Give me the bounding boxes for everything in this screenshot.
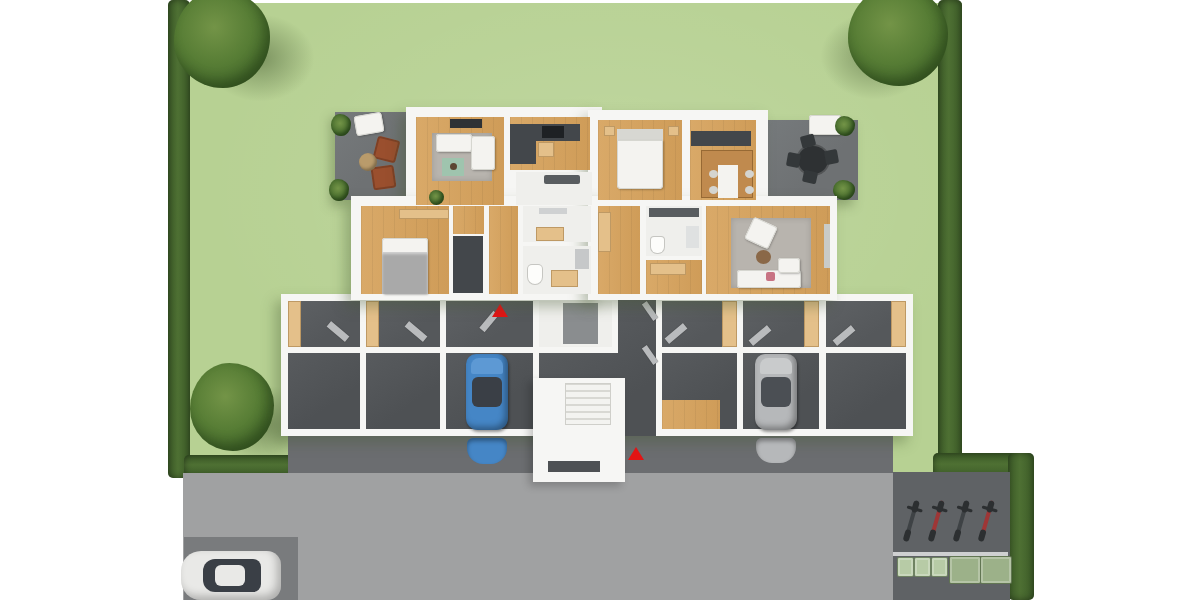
garage-bay [826, 353, 906, 429]
bicycle-row [903, 500, 1003, 550]
tree-middle-left [190, 363, 274, 451]
bed-headboard [617, 129, 663, 140]
waste-bin-large [949, 556, 981, 584]
window-strip [824, 224, 830, 268]
kitchen-island [510, 141, 536, 164]
table-runner [718, 165, 738, 198]
storage-shelf [804, 301, 819, 347]
waste-bin-row [897, 556, 1012, 586]
washer [575, 249, 589, 269]
waste-bin-large [980, 556, 1012, 584]
garage-bay [288, 353, 360, 429]
entry-doormat [548, 461, 600, 472]
sofa [436, 134, 472, 152]
dining-sideboard [691, 131, 751, 146]
basement-room-wood-floor [662, 400, 720, 429]
storage-shelf [722, 301, 737, 347]
sideboard [650, 263, 686, 275]
elevator [561, 301, 600, 346]
bicycle [972, 499, 1000, 546]
bed-2-duvet [382, 252, 428, 294]
bicycle [947, 499, 975, 546]
bicycle [922, 499, 950, 546]
wardrobe [453, 236, 483, 293]
staircase [565, 383, 611, 425]
storage-shelf [366, 301, 379, 347]
storage-shelf [891, 301, 906, 347]
nightstand [668, 126, 679, 136]
toilet [651, 237, 664, 253]
blue-car-hood [471, 358, 503, 374]
patio-chair-black [802, 170, 818, 185]
nightstand [604, 126, 615, 136]
stove [542, 126, 564, 138]
patio-chair-black [786, 152, 801, 168]
silver-car-hood [760, 358, 792, 374]
vanity [536, 227, 564, 241]
dining-chair [745, 170, 754, 178]
silver-car-rear [756, 438, 796, 463]
patio-table-black [798, 146, 828, 174]
blue-car-windshield [472, 377, 502, 407]
double-bed [617, 140, 663, 189]
hedge-right [938, 0, 962, 460]
waste-bin-small [931, 557, 948, 577]
sink [686, 226, 699, 248]
sofa-pillow [766, 272, 775, 281]
dining-chair [709, 170, 718, 178]
white-car-roof [215, 565, 245, 586]
hall-wardrobe [598, 212, 611, 252]
entrance-marker-triangle [628, 447, 644, 460]
waste-bin-small [897, 557, 914, 577]
patio-chair-black [824, 149, 839, 165]
entrance-marker-triangle [492, 304, 508, 317]
kitchen-table [538, 142, 554, 157]
garage-bay [366, 353, 440, 429]
shower [649, 208, 699, 217]
toilet [528, 265, 542, 284]
blue-car-rear [467, 438, 507, 464]
silver-car-windshield [761, 377, 791, 407]
white-car [181, 551, 281, 600]
tv-sideboard [450, 119, 482, 128]
blue-car [466, 354, 508, 430]
mirror [539, 208, 567, 214]
silver-car [755, 354, 797, 430]
ottoman-round [756, 250, 771, 264]
hallway [489, 206, 518, 294]
patio-ottoman [359, 153, 377, 171]
dining-chair [709, 186, 718, 194]
storage-shelf [288, 301, 301, 347]
coffee-table [450, 163, 457, 170]
floor-plan-canvas [0, 0, 1200, 600]
waste-bin-small [914, 557, 931, 577]
patio-chair [371, 165, 397, 191]
sofa-chaise [471, 136, 495, 170]
closet-room [453, 206, 484, 234]
dining-chair [745, 186, 754, 194]
desk-shelf [399, 209, 449, 219]
vanity [551, 270, 578, 287]
bathtub [544, 175, 580, 184]
side-table [778, 258, 800, 273]
